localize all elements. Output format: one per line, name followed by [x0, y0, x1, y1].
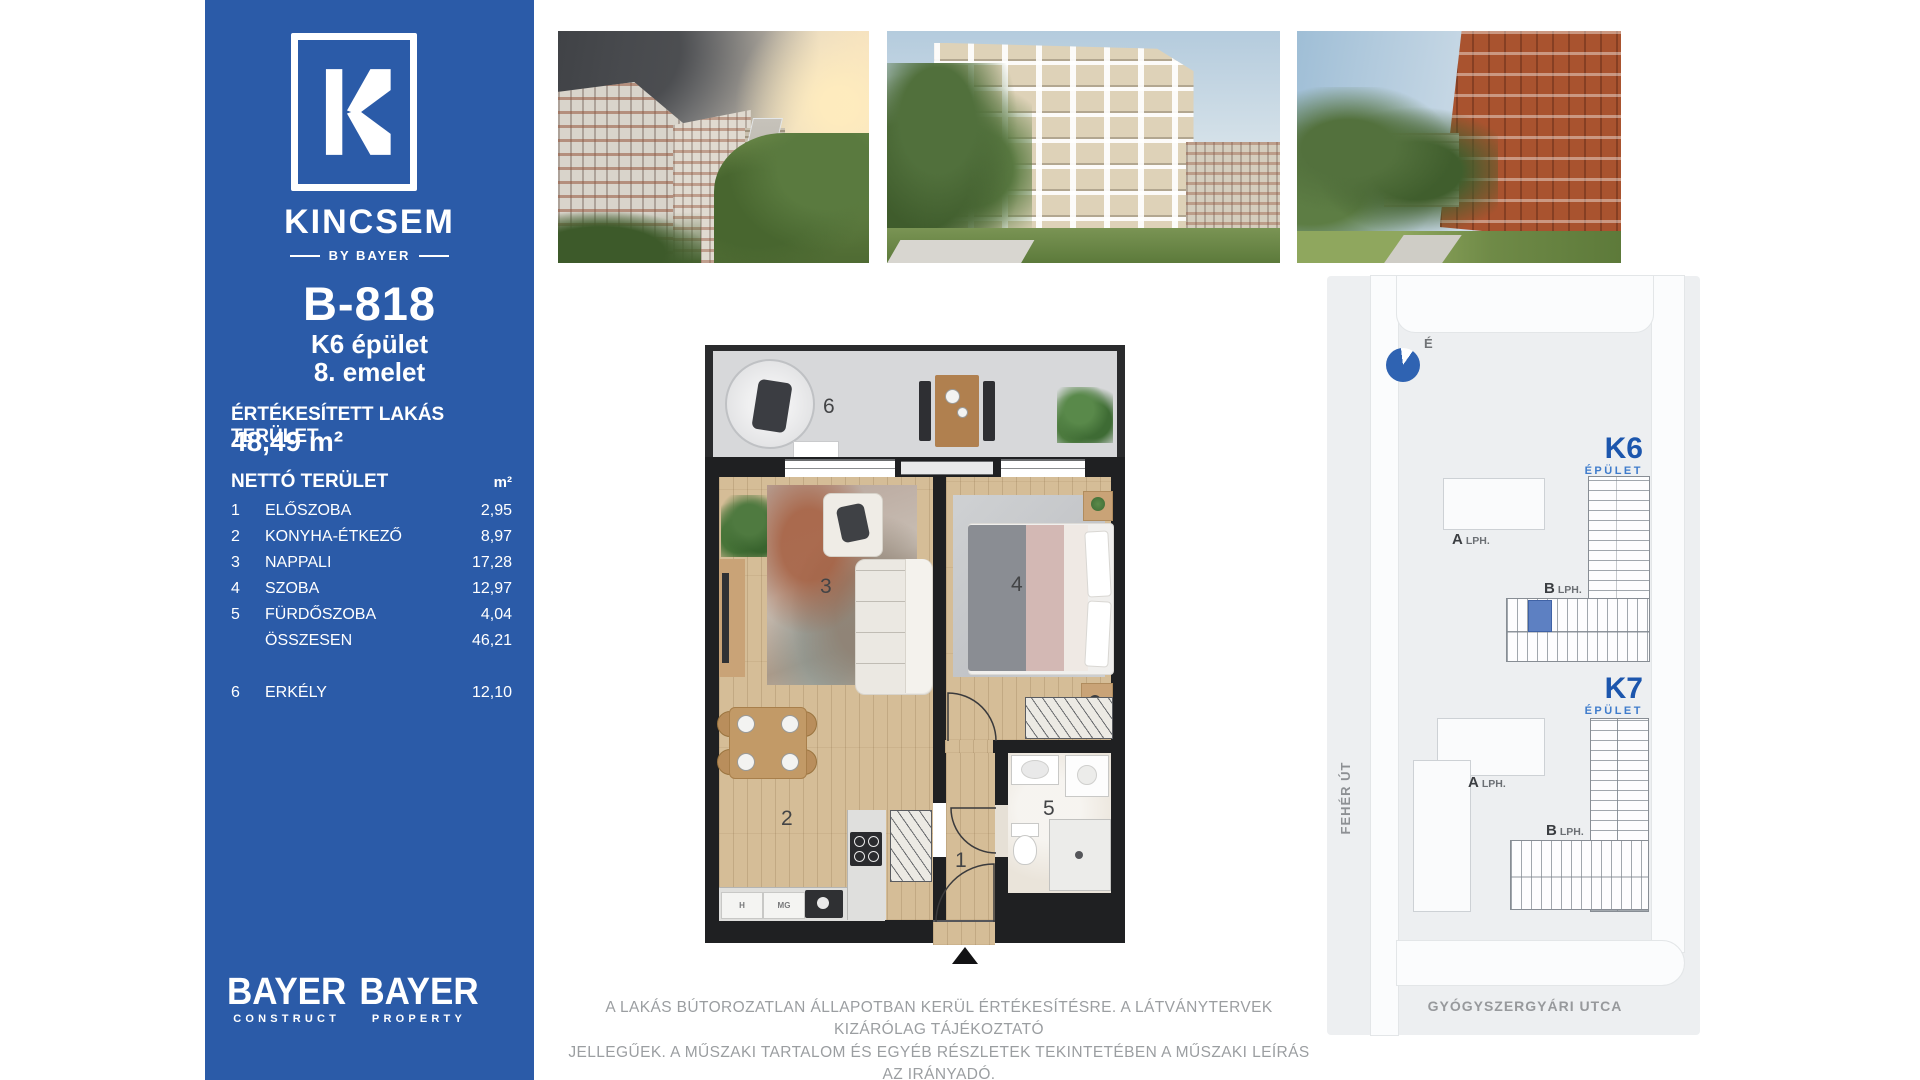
table-title: NETTÓ TERÜLET	[231, 471, 388, 493]
k7-id: K7	[1556, 674, 1643, 704]
row-label: KONYHA-ÉTKEZŐ	[265, 528, 481, 546]
bayer-wordmark: BAYER	[227, 973, 346, 1011]
row-value: 2,95	[481, 502, 512, 520]
brand-byline: BY BAYER	[205, 248, 534, 263]
table-row-balcony: 6 ERKÉLY 12,10	[231, 684, 512, 710]
row-value: 4,04	[481, 606, 512, 624]
disclaimer: A LAKÁS BÚTOROZATLAN ÁLLAPOTBAN KERÜL ÉR…	[557, 997, 1321, 1080]
row-value: 8,97	[481, 528, 512, 546]
unit-id: B-818	[205, 276, 534, 331]
k7-stair-a-label: ALPH.	[1468, 774, 1506, 791]
table-row: 5 FÜRDŐSZOBA 4,04	[231, 606, 512, 632]
row-num: 6	[231, 684, 265, 702]
unit-building: K6 épület	[205, 331, 534, 358]
photo-trees	[558, 212, 701, 263]
stair-letter: B	[1546, 822, 1557, 839]
row-label: SZOBA	[265, 580, 472, 598]
k6-building-label: K6 ÉPÜLET	[1556, 434, 1643, 477]
map-top-road	[1397, 276, 1653, 332]
photo-tree	[887, 63, 1032, 253]
k6-stair-b-label: BLPH.	[1544, 580, 1582, 597]
row-label: NAPPALI	[265, 554, 472, 572]
row-value: 12,10	[472, 684, 512, 702]
floor-plan: 6	[705, 345, 1125, 967]
table-unit: m²	[494, 474, 512, 491]
k6-id: K6	[1556, 434, 1643, 464]
street-label-feher-ut: FEHÉR ÚT	[1338, 748, 1354, 848]
compass-icon	[1386, 348, 1420, 382]
rendering-photo-promenade	[1297, 31, 1621, 263]
k6-stair-a-label: ALPH.	[1452, 531, 1490, 548]
k7-stair-a-building-wing	[1413, 760, 1471, 912]
sidebar: KINCSEM BY BAYER B-818 K6 épület 8. emel…	[205, 0, 534, 1080]
compass-north-label: É	[1424, 336, 1433, 351]
byline-dash-left	[290, 255, 320, 257]
k7-stair-b-label: BLPH.	[1546, 822, 1584, 839]
bayer-construct-logo: BAYER CONSTRUCT	[227, 974, 346, 1025]
k7-type: ÉPÜLET	[1556, 705, 1643, 717]
net-area-rows: 1 ELŐSZOBA 2,95 2 KONYHA-ÉTKEZŐ 8,97 3 N…	[231, 502, 512, 710]
disclaimer-line-1: A LAKÁS BÚTOROZATLAN ÁLLAPOTBAN KERÜL ÉR…	[557, 997, 1321, 1042]
stair-suffix: LPH.	[1482, 778, 1506, 790]
row-label: FÜRDŐSZOBA	[265, 606, 481, 624]
entrance-arrow	[952, 947, 978, 964]
footer-logos: BAYER CONSTRUCT BAYER PROPERTY	[227, 974, 527, 1025]
unit-floor: 8. emelet	[205, 359, 534, 386]
row-value: 12,97	[472, 580, 512, 598]
table-row: 4 SZOBA 12,97	[231, 580, 512, 606]
road-right	[1652, 276, 1684, 952]
net-area-table: NETTÓ TERÜLET m² 1 ELŐSZOBA 2,95 2 KONYH…	[231, 471, 512, 710]
stair-letter: B	[1544, 580, 1555, 597]
bayer-division: CONSTRUCT	[233, 1013, 340, 1025]
row-num: 4	[231, 580, 265, 598]
table-row: 1 ELŐSZOBA 2,95	[231, 502, 512, 528]
table-row: 3 NAPPALI 17,28	[231, 554, 512, 580]
brand-name: KINCSEM	[205, 203, 534, 242]
street-label-gyogyszergyari-utca: GYÓGYSZERGYÁRI UTCA	[1390, 998, 1660, 1014]
highlighted-unit	[1528, 600, 1552, 632]
road-feher-ut	[1371, 276, 1398, 1035]
photo-path	[887, 240, 1034, 263]
stair-suffix: LPH.	[1558, 584, 1582, 596]
sold-area-value: 48,49 m²	[231, 426, 521, 458]
photo-park	[714, 133, 870, 263]
table-row: 2 KONYHA-ÉTKEZŐ 8,97	[231, 528, 512, 554]
bayer-wordmark: BAYER	[359, 973, 478, 1011]
row-num: 5	[231, 606, 265, 624]
bayer-division: PROPERTY	[372, 1013, 466, 1025]
row-value: 17,28	[472, 554, 512, 572]
row-value: 46,21	[472, 632, 512, 650]
stair-letter: A	[1452, 531, 1463, 548]
road-gyogyszergyari-utca	[1397, 941, 1684, 985]
k7-building-label: K7 ÉPÜLET	[1556, 674, 1643, 717]
rendering-photo-street-aerial	[558, 31, 869, 263]
k-glyph-icon	[315, 66, 393, 158]
stair-suffix: LPH.	[1560, 826, 1584, 838]
byline-dash-right	[419, 255, 449, 257]
door-arcs	[705, 345, 1125, 967]
stair-suffix: LPH.	[1466, 535, 1490, 547]
table-row-total: ÖSSZESEN 46,21	[231, 632, 512, 658]
stair-letter: A	[1468, 774, 1479, 791]
rendering-photo-courtyard	[887, 31, 1280, 263]
page: KINCSEM BY BAYER B-818 K6 épület 8. emel…	[0, 0, 1920, 1080]
disclaimer-line-2: JELLEGŰEK. A MŰSZAKI TARTALOM ÉS EGYÉB R…	[557, 1042, 1321, 1080]
bayer-property-logo: BAYER PROPERTY	[359, 974, 478, 1025]
k7-wing-horizontal	[1510, 840, 1649, 910]
byline-text: BY BAYER	[329, 248, 411, 263]
photo-building	[1186, 142, 1280, 235]
row-num: 3	[231, 554, 265, 572]
row-label: ÖSSZESEN	[265, 632, 472, 650]
net-area-table-header: NETTÓ TERÜLET m²	[231, 471, 512, 493]
row-label: ERKÉLY	[265, 684, 472, 702]
row-num: 1	[231, 502, 265, 520]
photo-trees	[1297, 87, 1498, 240]
kincsem-logo-icon	[291, 33, 417, 191]
k6-stair-a-building	[1443, 478, 1545, 530]
row-num: 2	[231, 528, 265, 546]
row-label: ELŐSZOBA	[265, 502, 481, 520]
